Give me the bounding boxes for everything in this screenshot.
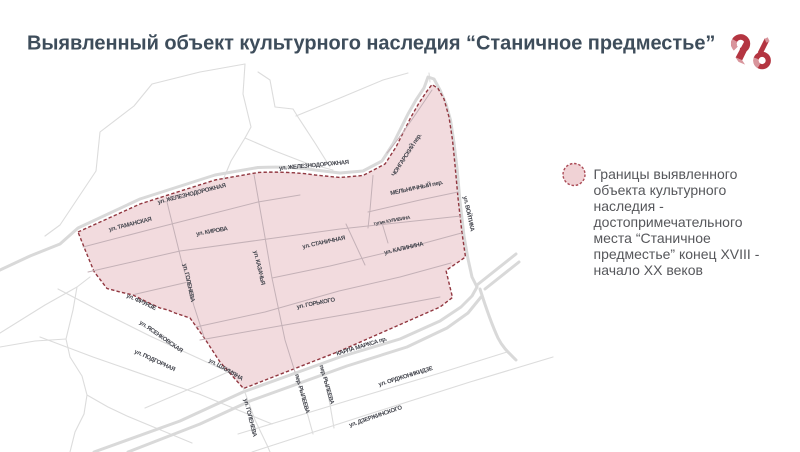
svg-text:объекта культурного: объекта культурного bbox=[594, 182, 727, 198]
svg-text:Границы выявленного: Границы выявленного bbox=[594, 166, 738, 182]
svg-text:предместье” конец XVIII -: предместье” конец XVIII - bbox=[594, 246, 760, 262]
svg-text:достопримечательного: достопримечательного bbox=[594, 214, 743, 230]
svg-text:места “Станичное: места “Станичное bbox=[594, 230, 712, 246]
svg-text:наследия -: наследия - bbox=[594, 198, 665, 214]
svg-text:начало XX веков: начало XX веков bbox=[594, 262, 703, 278]
svg-text:Выявленный объект культурного: Выявленный объект культурного наследия “… bbox=[27, 33, 715, 55]
